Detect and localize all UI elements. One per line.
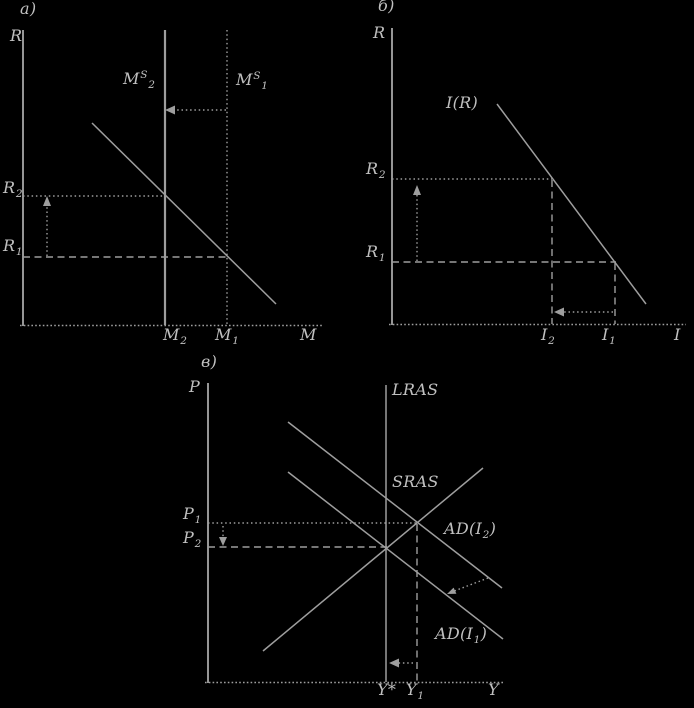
y1-tick-label: Y1 (406, 681, 424, 702)
p-decrease-arrowhead-icon (219, 537, 227, 546)
y-decrease-arrowhead-icon (389, 659, 399, 668)
b-r1-label: R1 (366, 243, 386, 264)
b-r2-label: R2 (366, 160, 386, 181)
ad1-curve (288, 472, 503, 639)
a-x-axis-label: M (300, 326, 317, 344)
b-x-axis-label: I (674, 326, 681, 344)
b-y-axis-label: R (373, 24, 385, 42)
ad2-label: AD(I2) (444, 520, 496, 541)
a-r2-label: R2 (3, 179, 23, 200)
ad1-label: AD(I1) (435, 625, 487, 646)
v-x-axis-label: Y (488, 681, 499, 699)
v-y-axis-label: P (189, 378, 200, 396)
three-panel-economics-figure: а) R M MS2 MS1 R2 R1 M2 M1 б) R I I(R) R… (0, 0, 694, 708)
panel-b-investment (389, 28, 686, 325)
money-demand-curve (92, 123, 276, 304)
ad2-curve (288, 422, 502, 588)
m2-tick-label: M2 (163, 326, 187, 347)
a-r1-label: R1 (3, 237, 23, 258)
ad-shift-arrow (453, 578, 488, 592)
sras-label: SRAS (392, 473, 439, 491)
ms2-label: MS2 (123, 69, 155, 91)
ad-shift-arrowhead-icon (447, 588, 456, 594)
investment-curve (497, 104, 646, 304)
ms-shift-arrowhead-icon (165, 106, 175, 115)
investment-curve-label: I(R) (446, 94, 478, 112)
m1-tick-label: M1 (215, 326, 239, 347)
panel-a-money-market (20, 30, 322, 326)
panel-b-title: б) (378, 0, 395, 15)
diagram-canvas (0, 0, 694, 708)
p2-label: P2 (183, 529, 202, 550)
i1-tick-label: I1 (602, 326, 616, 347)
a-r-increase-arrowhead-icon (43, 196, 51, 206)
ms1-label: MS1 (236, 70, 268, 92)
lras-label: LRAS (392, 381, 438, 399)
a-y-axis-label: R (10, 27, 22, 45)
i2-tick-label: I2 (541, 326, 555, 347)
p1-label: P1 (183, 505, 202, 526)
panel-a-title: а) (20, 0, 36, 18)
i-decrease-arrowhead-icon (554, 308, 564, 317)
ystar-tick-label: Y* (377, 681, 396, 699)
panel-v-title: в) (201, 353, 217, 371)
b-r-increase-arrowhead-icon (413, 185, 421, 195)
